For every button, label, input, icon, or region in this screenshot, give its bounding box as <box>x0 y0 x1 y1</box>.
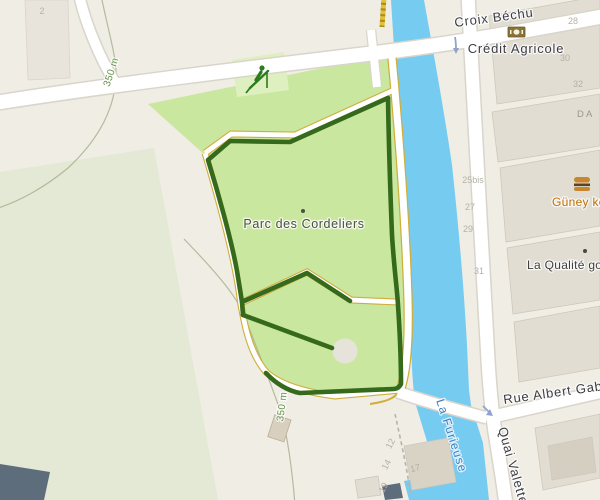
house-number: 2 <box>39 6 44 16</box>
building <box>25 0 70 80</box>
road-ref-label: D A <box>577 109 593 120</box>
house-number: 31 <box>474 266 484 276</box>
shop-poi-dot <box>583 249 587 253</box>
bank-icon <box>508 27 525 37</box>
park-poi-dot <box>301 209 305 213</box>
poi-label-la-qualite: La Qualité gou <box>527 258 600 272</box>
map-canvas[interactable]: Croix Béchu Crédit Agricole Güney ke La … <box>0 0 600 500</box>
fast-food-icon <box>574 177 590 191</box>
poi-label-credit-agricole: Crédit Agricole <box>468 41 565 56</box>
house-number: 25bis <box>462 175 484 185</box>
house-number: 32 <box>573 79 583 89</box>
house-number: 27 <box>465 202 475 212</box>
house-number: 28 <box>568 16 578 26</box>
house-number: 30 <box>560 53 570 63</box>
poi-label-guney: Güney ke <box>552 195 600 209</box>
map-container: Croix Béchu Crédit Agricole Güney ke La … <box>0 0 600 500</box>
fountain <box>333 339 358 364</box>
house-number: 29 <box>463 224 473 234</box>
park-label: Parc des Cordeliers <box>243 217 364 231</box>
